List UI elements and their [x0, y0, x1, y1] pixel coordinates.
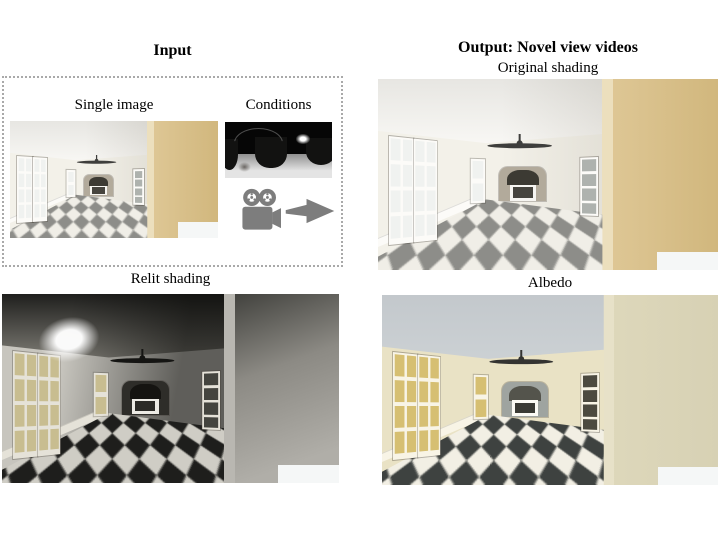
left-small-window [474, 375, 488, 419]
fireplace-insert [90, 186, 106, 196]
fireplace-insert [132, 399, 158, 415]
window-sash [17, 156, 33, 223]
window-sash [38, 353, 61, 456]
ceiling-fan-icon [76, 155, 117, 167]
input-single-image [10, 121, 218, 238]
single-image-label: Single image [10, 96, 218, 114]
output-section-title: Output: Novel view videos [378, 39, 718, 57]
fireplace-insert [512, 400, 538, 416]
watermark-patch [278, 465, 339, 483]
fireplace [499, 167, 546, 201]
left-double-window [389, 136, 437, 245]
input-section-title: Input [2, 42, 343, 60]
right-wall-column [224, 294, 339, 483]
room-interior [378, 79, 602, 270]
original-shading-label: Original shading [378, 59, 718, 77]
watermark-patch [657, 252, 718, 270]
back-right-door [133, 169, 144, 205]
right-wall-column [604, 295, 718, 485]
right-wall-column [147, 121, 218, 238]
window-sash [389, 136, 414, 245]
back-right-door [202, 371, 220, 430]
back-right-door [580, 157, 598, 216]
fireplace [122, 381, 169, 415]
original-shading-video [378, 79, 718, 270]
pano-smudge [238, 162, 251, 172]
left-small-window [67, 170, 76, 197]
back-right-door [582, 373, 600, 432]
conditions-label: Conditions [225, 96, 332, 114]
left-double-window [13, 351, 60, 459]
right-arrow-icon [284, 196, 336, 226]
fireplace-opening [509, 386, 541, 401]
watermark-patch [178, 222, 218, 238]
pano-light-source [296, 134, 310, 144]
fireplace-screen [92, 187, 104, 193]
room-interior [2, 294, 224, 483]
left-double-window [17, 156, 47, 223]
paper-figure: Input Single image [0, 0, 720, 540]
left-double-window [393, 352, 440, 460]
fireplace [84, 175, 113, 196]
room-interior [382, 295, 604, 485]
fireplace-screen [513, 187, 533, 197]
window-sash [32, 157, 47, 222]
window-sash [414, 139, 437, 243]
fireplace-opening [130, 384, 162, 399]
room-interior [10, 121, 147, 238]
left-small-window [94, 373, 108, 417]
ceiling-fan-icon [486, 134, 553, 153]
left-small-window [471, 159, 485, 203]
window-sash [393, 352, 418, 460]
albedo-video [382, 295, 718, 485]
pano-dark-shape [306, 138, 332, 165]
watermark-patch [658, 467, 718, 485]
camera-motion-indicator [241, 187, 341, 235]
fireplace-screen [515, 403, 535, 413]
ceiling-fan-icon [109, 349, 176, 368]
fireplace-opening [507, 170, 539, 185]
fireplace [502, 382, 549, 416]
pano-dark-shape [255, 137, 287, 168]
relit-shading-label: Relit shading [2, 270, 339, 288]
conditions-environment-map [225, 122, 332, 178]
fireplace-insert [510, 185, 536, 201]
window-sash [13, 351, 38, 459]
ceiling-fan-icon [488, 350, 555, 369]
fireplace-screen [135, 401, 155, 411]
window-sash [418, 355, 440, 458]
relit-shading-video [2, 294, 339, 483]
movie-camera-icon [241, 188, 281, 234]
albedo-label: Albedo [382, 274, 718, 292]
right-wall-column [602, 79, 718, 270]
